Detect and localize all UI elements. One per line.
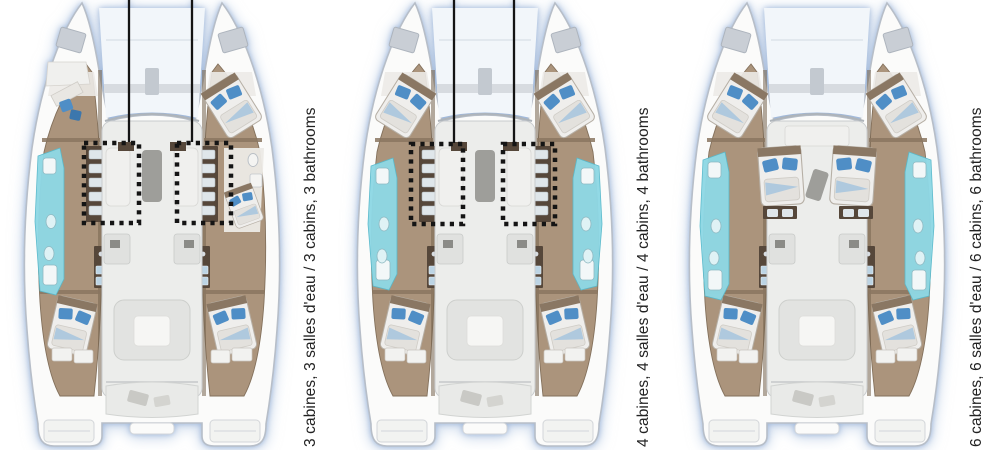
inner-wall [867,70,871,396]
pillow [564,308,579,320]
sink [913,162,926,178]
toilet [46,215,56,229]
bulkhead [537,138,595,142]
toilet [248,154,258,167]
floorplan-drawing-6-cabins [667,0,967,450]
cockpit [771,382,863,418]
galley-counter [437,234,463,264]
boat-plan-6-cabins [667,0,967,450]
mid-cabin-bed [757,145,804,206]
pillow [723,308,738,320]
stern-platforms [377,420,593,442]
anchor-fitting [145,68,159,95]
bulkhead [204,138,262,142]
bathroom-zone [368,158,397,290]
salon [435,114,535,398]
toilet [581,217,591,231]
boat-plan-4-cabins [335,0,635,450]
pillow [58,308,73,320]
bathroom-zone [905,152,934,300]
inner-wall [763,70,767,396]
mid-cabin-bed [829,145,876,206]
plan-label-3-cabins: 3 cabines, 3 salles d'eau / 3 cabins, 3 … [299,79,323,447]
stern-platforms [709,420,925,442]
galley-bench [106,148,130,206]
sink [581,168,594,184]
bulkhead [707,138,765,142]
plan-label-4-cabins: 4 cabines, 4 salles d'eau / 4 cabins, 4 … [632,79,656,447]
bathroom-zone [573,158,602,290]
sink [708,162,721,178]
salon-table [475,150,495,202]
pillow [391,308,406,320]
boat-plan-3-cabins [2,0,302,450]
sink [43,158,56,174]
bulkhead [373,290,433,294]
bathroom-zone [700,152,729,300]
sink [376,168,389,184]
inner-wall [98,70,102,396]
floorplan-drawing-3-cabins [2,0,302,450]
anchor-fitting [810,68,824,95]
toilet [913,219,923,233]
dinette-table [467,316,503,346]
inner-wall [535,70,539,396]
galley-bench [507,148,531,206]
anchor-fitting [478,68,492,95]
pillow [231,308,246,320]
bulkhead [537,290,597,294]
cockpit [106,382,198,418]
cockpit [439,382,531,418]
catamaran-layouts-canvas: 3 cabines, 3 salles d'eau / 3 cabins, 3 … [0,0,1000,450]
galley-counter [174,234,200,264]
bulkhead [42,138,100,142]
inner-wall [431,70,435,396]
floorplan-drawing-4-cabins [335,0,635,450]
bathroom-zone [35,148,64,295]
foredeck-trampoline [432,8,538,118]
bulkhead [204,290,264,294]
pillow [782,157,798,170]
salon [757,114,876,398]
toilet [711,219,721,233]
inner-wall [202,70,206,396]
galley-counter [839,234,865,264]
galley-counter [507,234,533,264]
shower [43,265,57,285]
galley-counter [769,234,795,264]
galley-counter [104,234,130,264]
galley-bench [439,148,463,206]
shower [912,270,926,290]
plan-label-6-cabins: 6 cabines, 6 salles d'eau / 6 cabins, 6 … [965,79,989,447]
foredeck-trampoline [764,8,870,118]
bulkhead [869,138,927,142]
shower [708,270,722,290]
pillow [836,157,852,170]
pillow [896,308,911,320]
stern-platforms [44,420,260,442]
toilet [379,217,389,231]
dinette-table [134,316,170,346]
foredeck-trampoline [99,8,205,118]
salon-table [142,150,162,202]
salon [102,114,202,398]
bulkhead [375,138,433,142]
dinette-table [799,316,835,346]
